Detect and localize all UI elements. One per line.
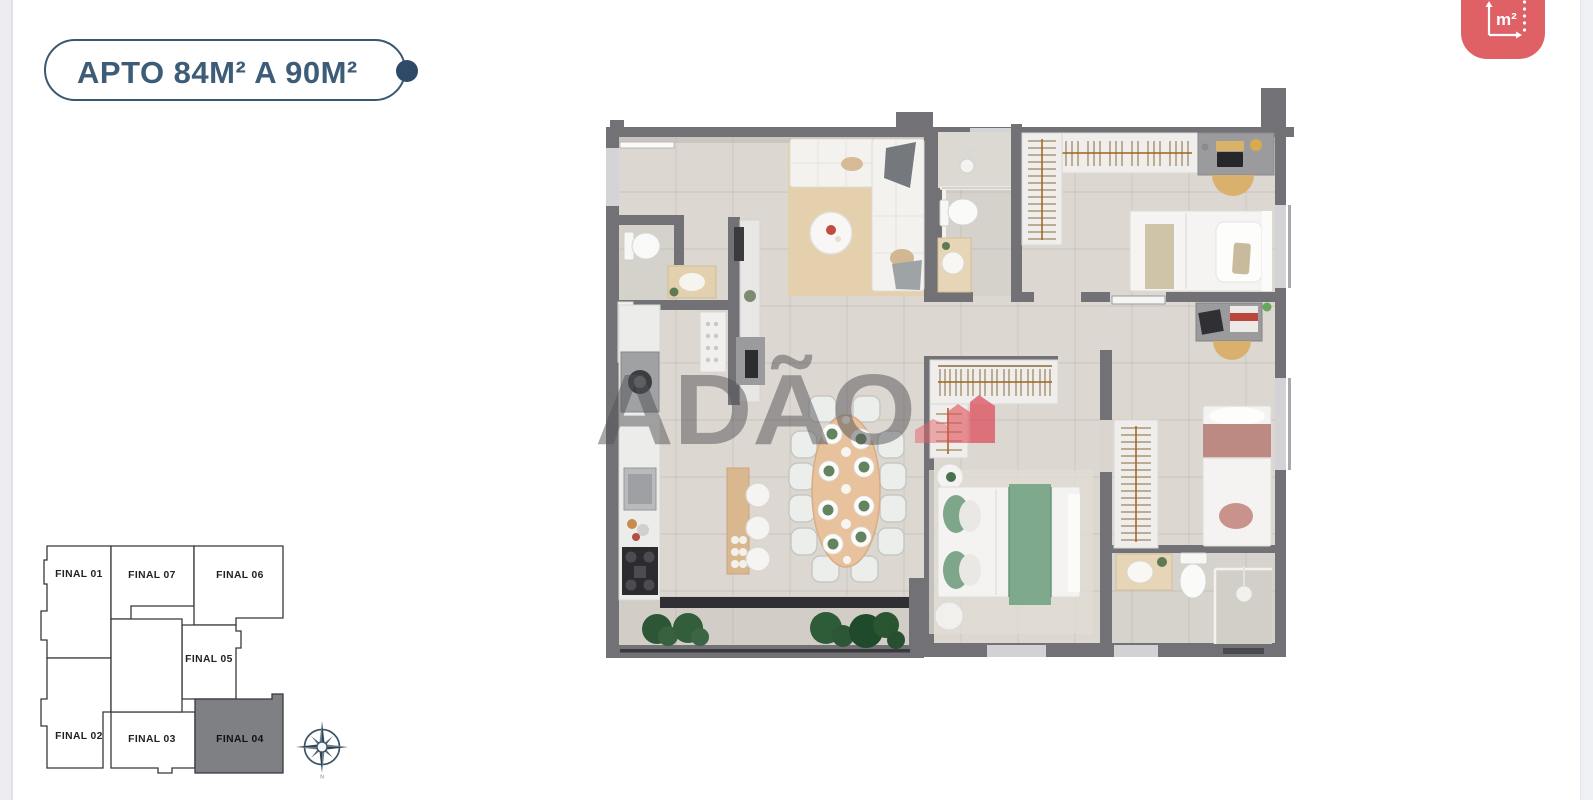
svg-text:m²: m² — [1496, 10, 1517, 29]
svg-text:FINAL 03: FINAL 03 — [128, 734, 176, 745]
svg-text:FINAL 02: FINAL 02 — [55, 731, 103, 742]
svg-text:FINAL 07: FINAL 07 — [128, 570, 176, 581]
svg-text:FINAL 06: FINAL 06 — [216, 570, 264, 581]
svg-text:FINAL 01: FINAL 01 — [55, 569, 103, 580]
svg-text:N: N — [320, 775, 324, 781]
svg-text:FINAL 04: FINAL 04 — [216, 734, 264, 745]
svg-text:FINAL 05: FINAL 05 — [185, 654, 233, 665]
